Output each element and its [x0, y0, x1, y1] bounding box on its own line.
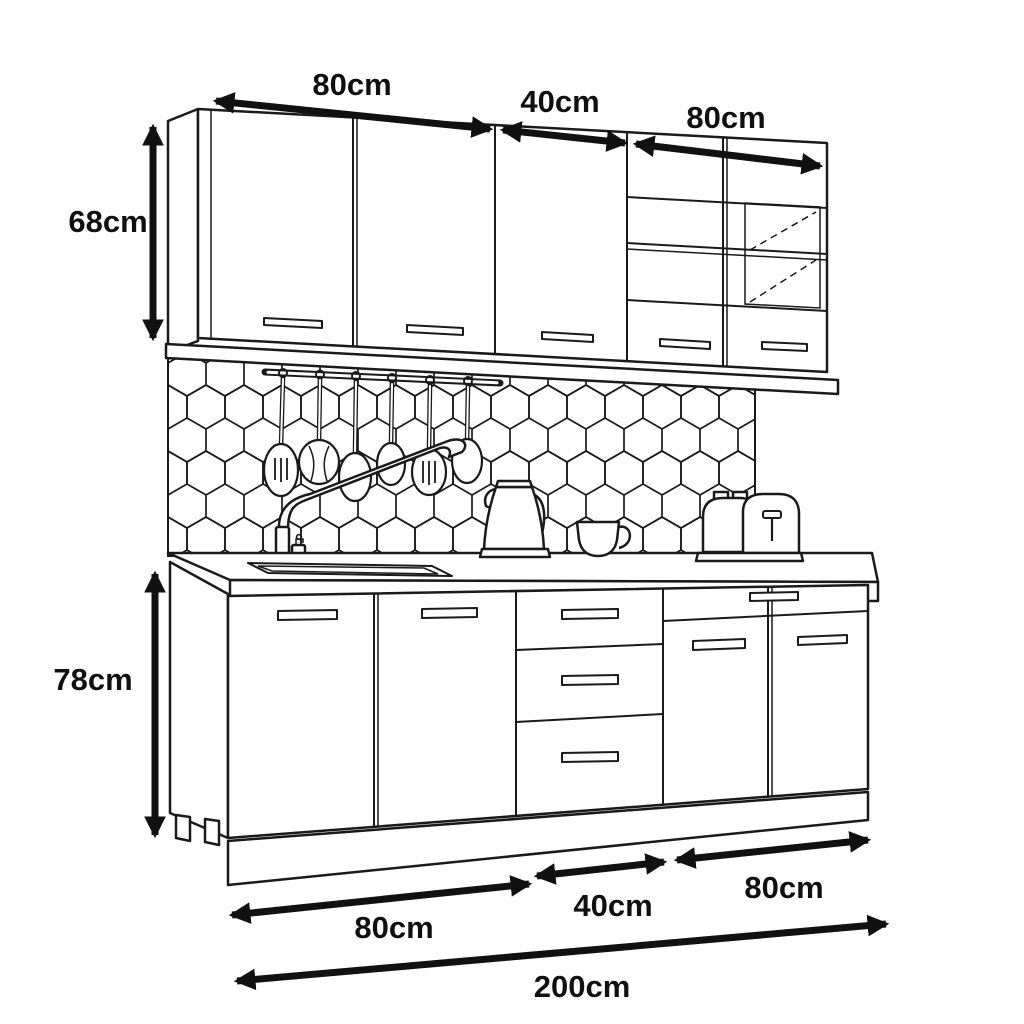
cabinet-handle	[278, 610, 337, 620]
dim-label-top-left: 80cm	[312, 67, 391, 102]
dim-bottom-middle: 40cm	[537, 862, 664, 923]
cabinet-handle	[693, 639, 745, 650]
dim-label-side-upper: 68cm	[68, 204, 147, 239]
dim-label-bottom-right: 80cm	[744, 870, 823, 905]
dim-bottom-total: 200cm	[237, 924, 886, 1004]
drawer-handle	[562, 752, 618, 762]
dim-side-upper: 68cm	[68, 127, 153, 338]
cabinet-handle	[798, 635, 847, 645]
dimension-arrow	[677, 840, 868, 860]
cabinet-leg	[205, 819, 219, 845]
kettle-base	[480, 549, 550, 557]
wall-cabinet-side-panel	[168, 109, 198, 352]
mug-body	[577, 522, 619, 556]
drawer-handle	[562, 609, 618, 619]
dim-bottom-left: 80cm	[232, 884, 529, 945]
base-cabinets	[170, 562, 868, 885]
drawer-handle	[750, 592, 798, 601]
toaster	[696, 492, 803, 561]
dim-side-lower: 78cm	[53, 574, 155, 835]
dim-label-total-width: 200cm	[534, 969, 631, 1004]
dim-bottom-right: 80cm	[677, 840, 868, 905]
wall-cabinet-front	[198, 109, 827, 372]
dim-label-side-lower: 78cm	[53, 662, 132, 697]
kettle-body	[484, 487, 544, 549]
cabinet-handle	[422, 608, 477, 618]
dim-label-top-middle: 40cm	[520, 84, 599, 119]
cabinet-leg	[176, 815, 190, 841]
dim-label-bottom-middle: 40cm	[573, 888, 652, 923]
dim-label-bottom-left: 80cm	[354, 910, 433, 945]
kettle-lid	[496, 481, 532, 487]
drawer-handle	[562, 675, 618, 685]
dimension-arrow	[537, 862, 664, 876]
toaster-base	[696, 553, 803, 561]
wall-cabinets	[166, 109, 838, 394]
dim-label-top-right: 80cm	[686, 100, 765, 135]
base-side-panel	[170, 562, 228, 838]
kitchen-diagram: 80cm 40cm 80cm 68cm 78cm 80cm 40cm 80cm	[0, 0, 1024, 1024]
cabinet-handle	[762, 342, 807, 351]
